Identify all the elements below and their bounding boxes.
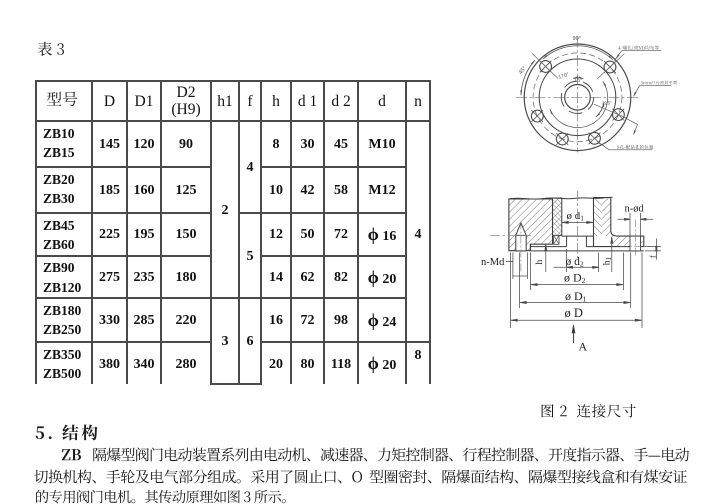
svg-text:ø D1: ø D1 [565, 289, 587, 304]
svg-text:45°: 45° [518, 65, 528, 75]
svg-text:n-ød: n-ød [625, 204, 645, 215]
svg-text:ø D2: ø D2 [564, 271, 586, 286]
svg-text:ø D: ø D [565, 306, 583, 320]
svg-text:n-Md: n-Md [481, 257, 505, 268]
svg-text:170°: 170° [558, 72, 570, 81]
svg-text:h: h [535, 260, 545, 265]
svg-text:90°: 90° [573, 36, 581, 42]
svg-text:A: A [579, 340, 588, 354]
svg-text:ø d2: ø d2 [566, 256, 584, 269]
svg-text:15°: 15° [574, 78, 582, 84]
svg-text:h1: h1 [603, 256, 614, 265]
svg-text:f: f [649, 255, 658, 258]
svg-text:ø d1: ø d1 [567, 210, 585, 223]
svg-text:22.5°: 22.5° [602, 100, 612, 105]
